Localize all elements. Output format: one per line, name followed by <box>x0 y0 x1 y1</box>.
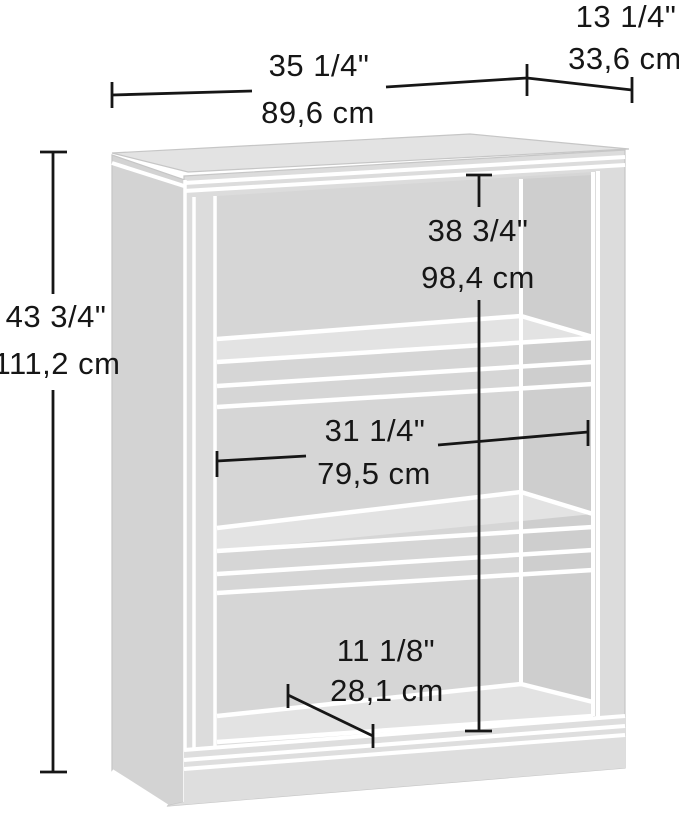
dimension-depth <box>527 77 632 103</box>
dimension-diagram: 35 1/4" 89,6 cm 13 1/4" 33,6 cm 43 3/4" … <box>0 0 679 828</box>
interior-height-inches-label: 38 3/4" <box>428 213 529 248</box>
interior-right-wall <box>521 175 593 714</box>
depth-cm-label: 33,6 cm <box>568 41 679 76</box>
shelf-depth-cm-label: 28,1 cm <box>330 673 444 708</box>
dimension-height <box>40 152 67 772</box>
interior-width-inches-label: 31 1/4" <box>325 413 426 448</box>
shelf-depth-inches-label: 11 1/8" <box>337 633 435 668</box>
depth-inches-label: 13 1/4" <box>576 0 677 34</box>
width-inches-label: 35 1/4" <box>269 48 370 83</box>
height-inches-label: 43 3/4" <box>6 299 107 334</box>
interior-height-cm-label: 98,4 cm <box>421 260 535 295</box>
side-panel-left <box>112 155 185 806</box>
height-cm-label: 111,2 cm <box>0 346 120 381</box>
bookcase-diagram-svg: 35 1/4" 89,6 cm 13 1/4" 33,6 cm 43 3/4" … <box>0 0 679 828</box>
interior-width-cm-label: 79,5 cm <box>317 456 431 491</box>
width-cm-label: 89,6 cm <box>261 95 375 130</box>
